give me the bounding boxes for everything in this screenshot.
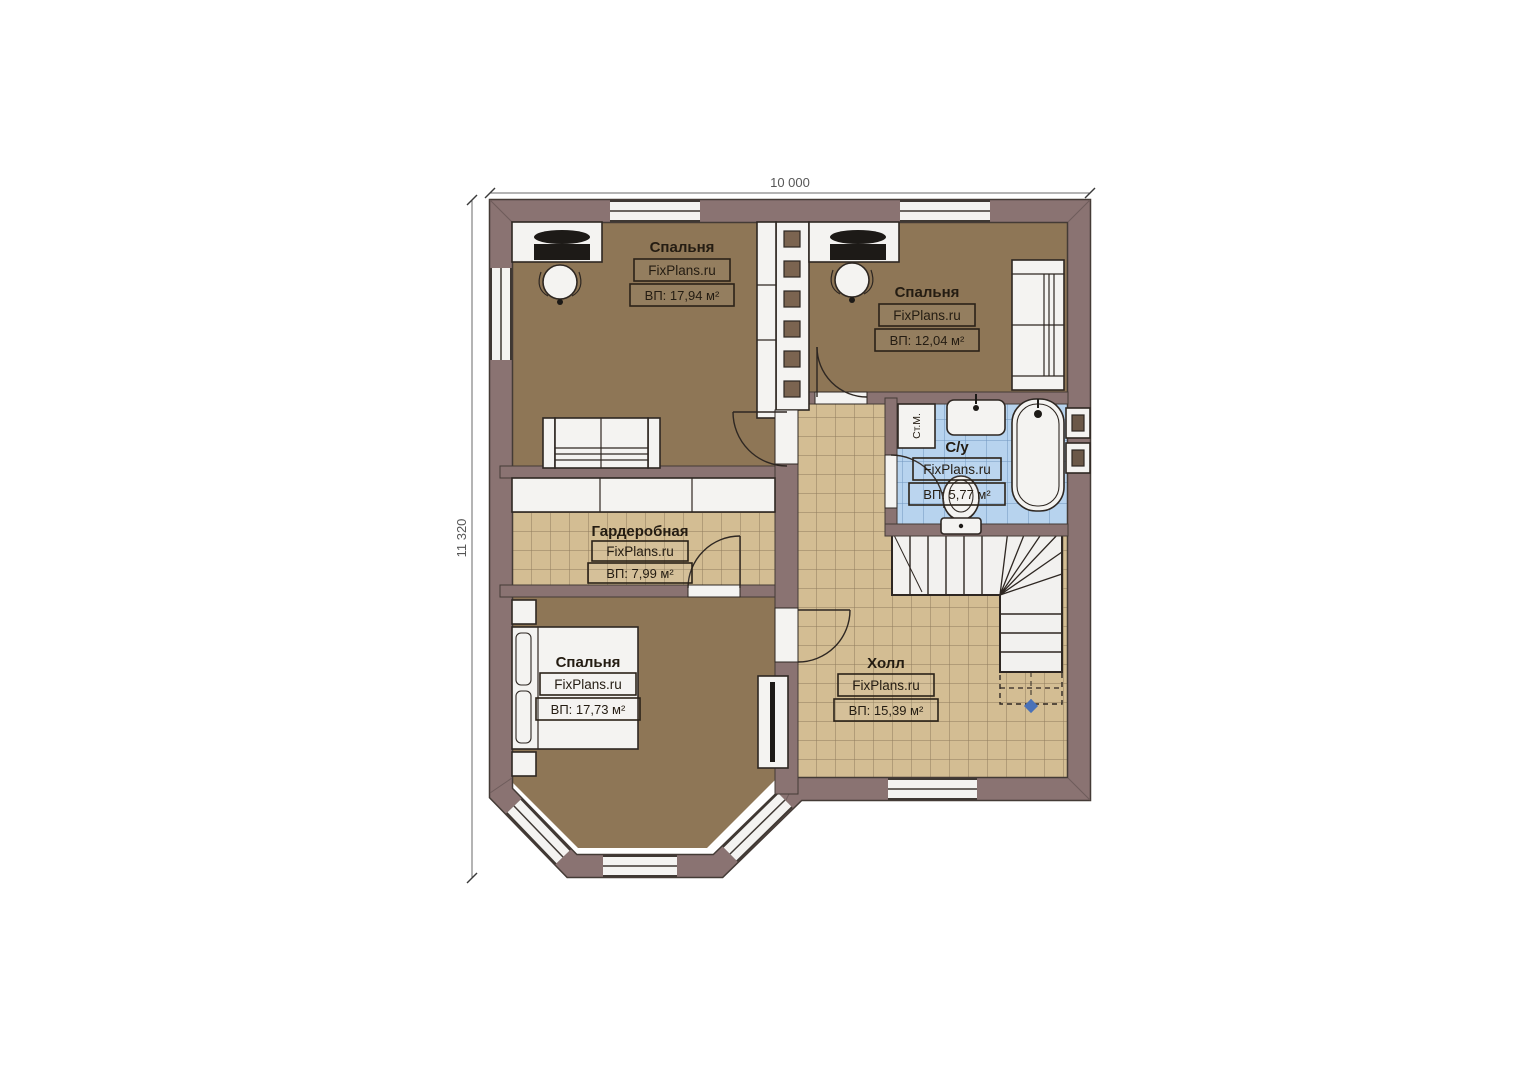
bedroom3-nightstand-top <box>512 600 536 624</box>
floor-plan-canvas: 10 000 11 320 <box>0 0 1528 1080</box>
room-area: ВП: 12,04 м² <box>890 333 965 348</box>
bedroom1-bed <box>543 418 660 468</box>
shelf-unit-partition <box>776 222 809 410</box>
brand-watermark: FixPlans.ru <box>852 678 920 693</box>
brand-watermark: FixPlans.ru <box>893 308 961 323</box>
room-area: ВП: 17,94 м² <box>645 288 720 303</box>
bathtub <box>1012 399 1064 511</box>
room-area: ВП: 5,77 м² <box>923 487 991 502</box>
bedroom1-cabinet <box>757 222 776 418</box>
washing-machine-label: Ст.М. <box>911 413 923 439</box>
label-wardrobe: Гардеробная FixPlans.ru ВП: 7,99 м² <box>588 523 692 583</box>
bedroom3-nightstand-bottom <box>512 752 536 776</box>
washing-machine: Ст.М. <box>898 404 935 448</box>
brand-watermark: FixPlans.ru <box>606 544 674 559</box>
bedroom2-desk <box>809 222 899 262</box>
room-area: ВП: 15,39 м² <box>849 703 924 718</box>
dimension-height-label: 11 320 <box>454 519 469 558</box>
wall-niche-top <box>1066 408 1090 438</box>
monitor-icon <box>534 230 590 244</box>
room-name: Спальня <box>650 239 715 256</box>
dimension-width-label: 10 000 <box>770 175 810 190</box>
bedroom3-tall-cabinet <box>758 676 788 768</box>
brand-watermark: FixPlans.ru <box>923 462 991 477</box>
room-name: Спальня <box>895 284 960 301</box>
bedroom2-bed <box>1012 260 1064 390</box>
floor-plan-page: 10 000 11 320 <box>0 0 1528 1080</box>
bathroom-sink <box>947 394 1005 435</box>
brand-watermark: FixPlans.ru <box>648 263 716 278</box>
room-name: Холл <box>867 655 905 672</box>
brand-watermark: FixPlans.ru <box>554 677 622 692</box>
dimension-top: 10 000 <box>485 175 1095 198</box>
room-name: Спальня <box>556 654 621 671</box>
room-name: С/у <box>945 439 969 456</box>
room-name: Гардеробная <box>591 523 688 540</box>
monitor-icon <box>830 230 886 244</box>
wall-niche-bottom <box>1066 443 1090 473</box>
bedroom1-desk <box>512 222 602 262</box>
wardrobe-closet <box>512 478 775 512</box>
room-area: ВП: 17,73 м² <box>551 702 626 717</box>
room-area: ВП: 7,99 м² <box>606 566 674 581</box>
dimension-left: 11 320 <box>454 195 477 883</box>
